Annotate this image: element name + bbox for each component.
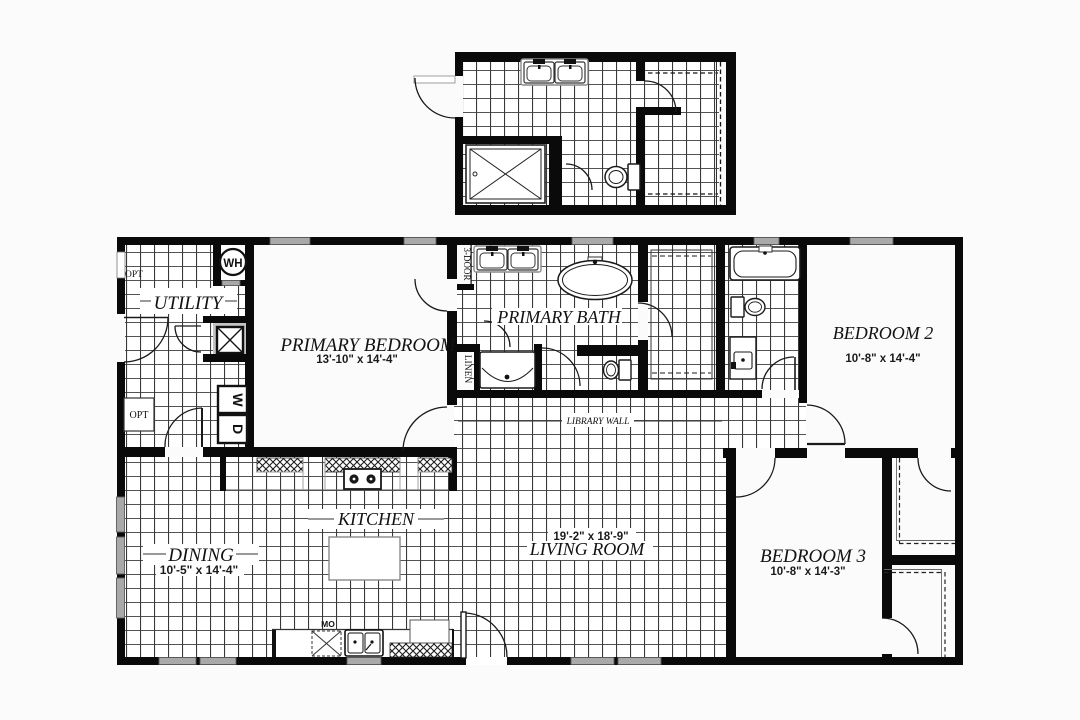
svg-text:10'-8" x 14'-4": 10'-8" x 14'-4" — [845, 353, 920, 365]
svg-text:13'-10" x 14'-4": 13'-10" x 14'-4" — [316, 354, 398, 366]
svg-text:10'-5" x 14'-4": 10'-5" x 14'-4" — [160, 563, 238, 577]
svg-text:D: D — [230, 424, 246, 434]
svg-text:W: W — [230, 393, 246, 407]
svg-text:BEDROOM 2: BEDROOM 2 — [833, 323, 933, 343]
svg-text:LINEN: LINEN — [462, 355, 472, 384]
svg-text:PRIMARY BEDROOM: PRIMARY BEDROOM — [279, 335, 457, 356]
svg-text:BEDROOM 3: BEDROOM 3 — [760, 546, 866, 567]
svg-text:UTILITY: UTILITY — [154, 293, 225, 314]
svg-text:OPT: OPT — [130, 410, 149, 421]
svg-text:LIVING ROOM: LIVING ROOM — [529, 539, 645, 559]
svg-text:LIBRARY WALL: LIBRARY WALL — [566, 417, 630, 427]
svg-text:MO: MO — [321, 619, 335, 629]
svg-text:OPT: OPT — [125, 270, 143, 280]
svg-text:KITCHEN: KITCHEN — [337, 509, 415, 529]
svg-text:PRIMARY BATH: PRIMARY BATH — [496, 307, 621, 327]
svg-text:10'-8" x 14'-3": 10'-8" x 14'-3" — [770, 566, 845, 578]
svg-text:3-DOOR: 3-DOOR — [462, 248, 472, 281]
svg-text:WH: WH — [223, 258, 242, 270]
